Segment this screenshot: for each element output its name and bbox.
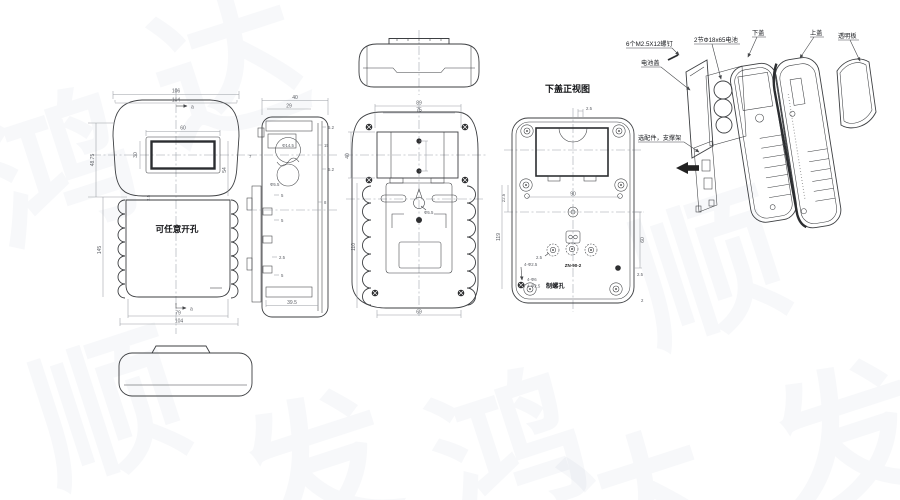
emblem-dot <box>574 235 578 239</box>
inner-boss <box>263 236 272 243</box>
bottom-side-view <box>119 346 252 396</box>
lower-cover-part <box>728 61 798 224</box>
dim-bottom-inner: 79 <box>175 311 181 317</box>
dim-battery-dia: Φ14.5 <box>282 143 294 148</box>
dim-bottom-outer: 104 <box>175 319 184 325</box>
model-text: ZN-90-2 <box>565 263 582 268</box>
inner-boss <box>263 208 272 215</box>
spring-wave <box>277 158 299 166</box>
front-body-outline <box>126 200 230 297</box>
screw-part <box>668 55 678 60</box>
back-ribs-left <box>363 186 372 305</box>
dim-screen-width: 60 <box>180 126 186 132</box>
grip-ribs-right <box>231 200 238 298</box>
side-section-view: 40 29 7 Φ14.5 Φ5.5 5.2 15 5.2 5 8 5 2.5 … <box>247 95 338 317</box>
assembly-arrow-icon <box>676 162 699 174</box>
dim-knurl: 2.5 <box>536 255 543 260</box>
battery-door-section <box>252 186 261 302</box>
lower-cover-title: 下盖正视图 <box>545 83 590 94</box>
dim-side-c: 5.2 <box>328 167 335 172</box>
door-latch <box>431 178 444 183</box>
dim-cover-span: 90 <box>570 192 576 198</box>
note-holes-2: 4-Φ6 <box>527 277 537 282</box>
lower-cover-view: 下盖正视图 ZN-90-2 <box>496 83 646 312</box>
dim-back-outer: 89 <box>416 101 422 107</box>
upper-cover-part <box>770 55 843 230</box>
section-hatch-bottom <box>266 287 312 297</box>
note-holes-3: 4-Φ2.5 <box>527 284 541 289</box>
drawing-canvas: 鸿 达 顺 发 鸿 达 顺 发 <box>0 0 900 500</box>
side-inner-wall <box>318 121 322 313</box>
dim-screen-height: 30 <box>133 152 139 158</box>
back-screws <box>366 124 469 297</box>
dim-side-top-inner: 29 <box>286 104 292 110</box>
dim-panel-height: 110 <box>351 243 357 251</box>
dim-hole-dia: Φ5.5 <box>270 182 280 187</box>
front-note: 可任意开孔 <box>156 223 199 234</box>
dim-side-h: 5 <box>281 273 284 278</box>
dim-cover-lb: 119 <box>496 233 502 241</box>
dim-keyhole: Φ5.5 <box>424 210 434 215</box>
label-bracket: 选配件，支撑架 <box>638 134 681 142</box>
technical-drawing: 可任意开孔 106 104 a 60 30 54 2.5 48.75 145 <box>0 0 900 500</box>
exploded-view: 6个M2.5X12螺钉 电池盖 2节Φ18x65电池 下盖 上盖 透明板 选配件… <box>626 29 876 231</box>
door-tab <box>247 198 252 210</box>
label-lower-cover: 下盖 <box>752 29 764 37</box>
battery-section-circle <box>276 138 301 163</box>
dim-cover-rb: 2.5 <box>637 272 644 277</box>
dim-screen-drop: 2.5 <box>146 194 151 201</box>
dim-cover-ra: 60 <box>640 237 646 243</box>
knurled-bosses <box>547 243 597 256</box>
dim-side-e: 8 <box>324 200 327 205</box>
inner-clip <box>258 128 264 137</box>
dim-right-height: 54 <box>222 167 228 173</box>
dim-side-d: 5 <box>281 193 284 198</box>
label-upper-cover: 上盖 <box>810 29 822 37</box>
note-tapped-holes: 制螺孔 <box>546 282 565 290</box>
dim-side-a: 5.2 <box>328 125 335 130</box>
vent-slot <box>432 195 457 202</box>
panel-screw <box>416 217 422 223</box>
dim-side-b: 15 <box>324 143 329 148</box>
dim-door-height: 40 <box>345 153 351 159</box>
dim-front-outer-width: 106 <box>172 89 181 95</box>
front-dimensions: 106 104 a 60 30 54 2.5 48.75 145 79 104 <box>88 89 239 327</box>
inner-boss <box>263 266 272 273</box>
dim-body-height: 145 <box>97 246 103 255</box>
cover-side-ridge <box>152 346 210 353</box>
section-marker-bottom: a <box>190 307 193 313</box>
dim-side-g: 2.5 <box>279 255 286 260</box>
top-view <box>359 30 479 95</box>
transparent-panel-part <box>837 59 876 128</box>
grip-ribs-left <box>118 200 125 298</box>
label-screws: 6个M2.5X12螺钉 <box>626 40 673 48</box>
battery-bay <box>536 128 608 176</box>
battery-cover-part <box>686 60 713 158</box>
label-batteries: 2节Φ18x65电池 <box>694 36 738 44</box>
dim-back-inner: 75 <box>416 108 422 114</box>
battery-section-circle2 <box>277 164 299 186</box>
door-latch <box>390 178 403 183</box>
emblem-dot <box>569 235 573 239</box>
dim-side-f: 5 <box>281 218 284 223</box>
back-view: 89 75 40 110 Φ5.5 69 <box>344 101 486 319</box>
door-tab <box>247 258 252 270</box>
back-outline <box>352 112 478 308</box>
cover-side-outline <box>119 353 252 396</box>
label-recess <box>399 242 441 268</box>
dim-side-top: 40 <box>292 95 298 101</box>
section-hatch-top <box>266 121 312 131</box>
vent-slot <box>381 195 406 202</box>
bracket-part <box>694 141 717 212</box>
front-view: 可任意开孔 106 104 a 60 30 54 2.5 48.75 145 <box>88 88 248 334</box>
dim-cover-rc: 2 <box>641 298 644 303</box>
section-marker-top: a <box>191 105 194 111</box>
dim-cover-top: 2.5 <box>586 106 593 111</box>
pilot-screw-right <box>615 265 621 271</box>
note-holes-1: 4-Φ2.5 <box>524 262 538 267</box>
dim-back-bottom: 69 <box>416 310 422 316</box>
label-battery-cover: 电池盖 <box>641 59 660 67</box>
dim-head-height: 48.75 <box>90 154 96 167</box>
batteries-part <box>714 81 732 133</box>
dim-front-inner-width: 104 <box>172 98 181 104</box>
back-ribs-right <box>467 186 476 305</box>
label-panel: 透明板 <box>838 32 857 40</box>
dim-side-bottom: 39.5 <box>287 300 297 306</box>
